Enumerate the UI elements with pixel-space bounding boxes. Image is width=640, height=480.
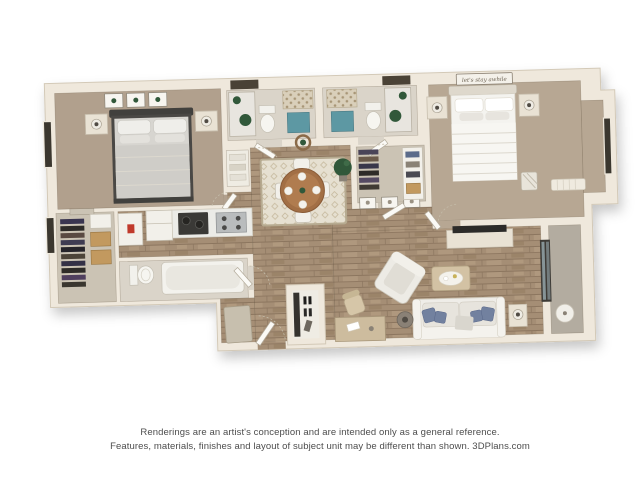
sofa-arm	[496, 297, 505, 337]
vanity-mirror	[382, 75, 410, 85]
hanging-coats	[293, 293, 300, 337]
floorplan-image: let's stay awhile	[0, 0, 640, 480]
hanging-clothes	[60, 233, 84, 239]
kitchen-sink	[178, 212, 209, 235]
place-setting	[284, 187, 292, 195]
hanging-clothes	[359, 170, 379, 176]
hanging-clothes	[61, 261, 85, 267]
bedroom2-bay-window	[603, 118, 612, 174]
toilet-bowl	[137, 266, 153, 284]
hanging-clothes	[61, 240, 85, 246]
place-setting	[312, 186, 320, 194]
hanging-clothes	[359, 177, 379, 183]
hanging-clothes	[61, 247, 85, 253]
hanging-clothes	[358, 156, 378, 162]
shoes	[308, 296, 311, 304]
folded-clothes	[406, 161, 420, 167]
bedroom1-window	[43, 121, 52, 167]
pillow	[120, 135, 150, 144]
shoes	[304, 308, 307, 316]
bed-queen	[109, 108, 196, 204]
stored-blanket	[90, 214, 111, 229]
toilet-bowl	[260, 114, 274, 132]
shower-curtain	[327, 89, 357, 108]
pillow	[153, 119, 186, 134]
entry-closet	[286, 284, 326, 345]
pillow	[117, 120, 150, 135]
disclaimer-line-1: Renderings are an artist's conception an…	[0, 426, 640, 440]
tray-decor	[444, 276, 449, 281]
pillow	[485, 98, 513, 112]
throw-blanket	[455, 315, 474, 330]
hanging-clothes	[62, 282, 86, 288]
folded-towels	[229, 154, 245, 160]
pillow	[485, 112, 509, 121]
plant-pot	[339, 175, 347, 181]
bed-sign-text: let's stay awhile	[462, 77, 508, 84]
toilet-bowl	[366, 111, 380, 129]
sink-basin	[182, 217, 190, 225]
shower-floor	[331, 111, 354, 132]
pillow	[155, 134, 185, 143]
pillow	[455, 98, 483, 112]
refrigerator	[146, 210, 173, 241]
hanging-clothes	[358, 149, 378, 155]
toilet-tank	[129, 265, 138, 285]
storage-basket	[91, 250, 111, 265]
closet1-window	[46, 217, 55, 253]
shower-floor	[287, 112, 310, 133]
sink-basin	[195, 220, 203, 228]
hanging-clothes	[61, 268, 85, 274]
hanging-clothes	[60, 219, 84, 225]
bed-queen	[449, 84, 520, 181]
shower-curtain	[283, 90, 313, 109]
storage-basket	[406, 183, 420, 193]
floorplan: let's stay awhile	[42, 68, 621, 356]
place-setting	[298, 172, 306, 180]
toilet-tank	[365, 102, 381, 110]
hanging-clothes	[60, 226, 84, 232]
shoes	[309, 308, 312, 316]
hanging-clothes	[62, 275, 86, 281]
disclaimer: Renderings are an artist's conception an…	[0, 426, 640, 454]
vanity-counter	[229, 92, 256, 137]
disclaimer-line-2: Features, materials, finishes and layout…	[0, 440, 640, 454]
sofa	[412, 297, 505, 340]
sofa-arm	[412, 299, 421, 339]
storage-basket	[90, 232, 110, 247]
stove-cooktop	[216, 212, 247, 233]
throw-pillow-blue	[434, 311, 447, 324]
water-heater-label	[127, 224, 134, 233]
window-bench	[551, 179, 585, 191]
folded-clothes	[405, 151, 419, 157]
hanging-clothes	[359, 184, 379, 190]
closet1-door-opening	[70, 208, 94, 215]
toilet-tank	[259, 105, 275, 113]
folded-towels	[230, 174, 246, 180]
folded-clothes	[406, 171, 420, 177]
linen-closet	[229, 154, 246, 180]
vanity-counter	[385, 87, 412, 132]
desk	[335, 316, 386, 341]
pillow	[459, 112, 483, 121]
hanging-clothes	[61, 254, 85, 260]
doormat	[224, 305, 253, 343]
hanging-clothes	[359, 163, 379, 169]
balcony	[556, 304, 574, 322]
folded-towels	[230, 164, 246, 170]
vanity-mirror	[230, 80, 258, 90]
floorplan-page: let's stay awhile	[0, 0, 640, 480]
shoes	[303, 296, 306, 304]
bathtub-basin	[165, 264, 240, 290]
place-setting	[299, 200, 307, 208]
